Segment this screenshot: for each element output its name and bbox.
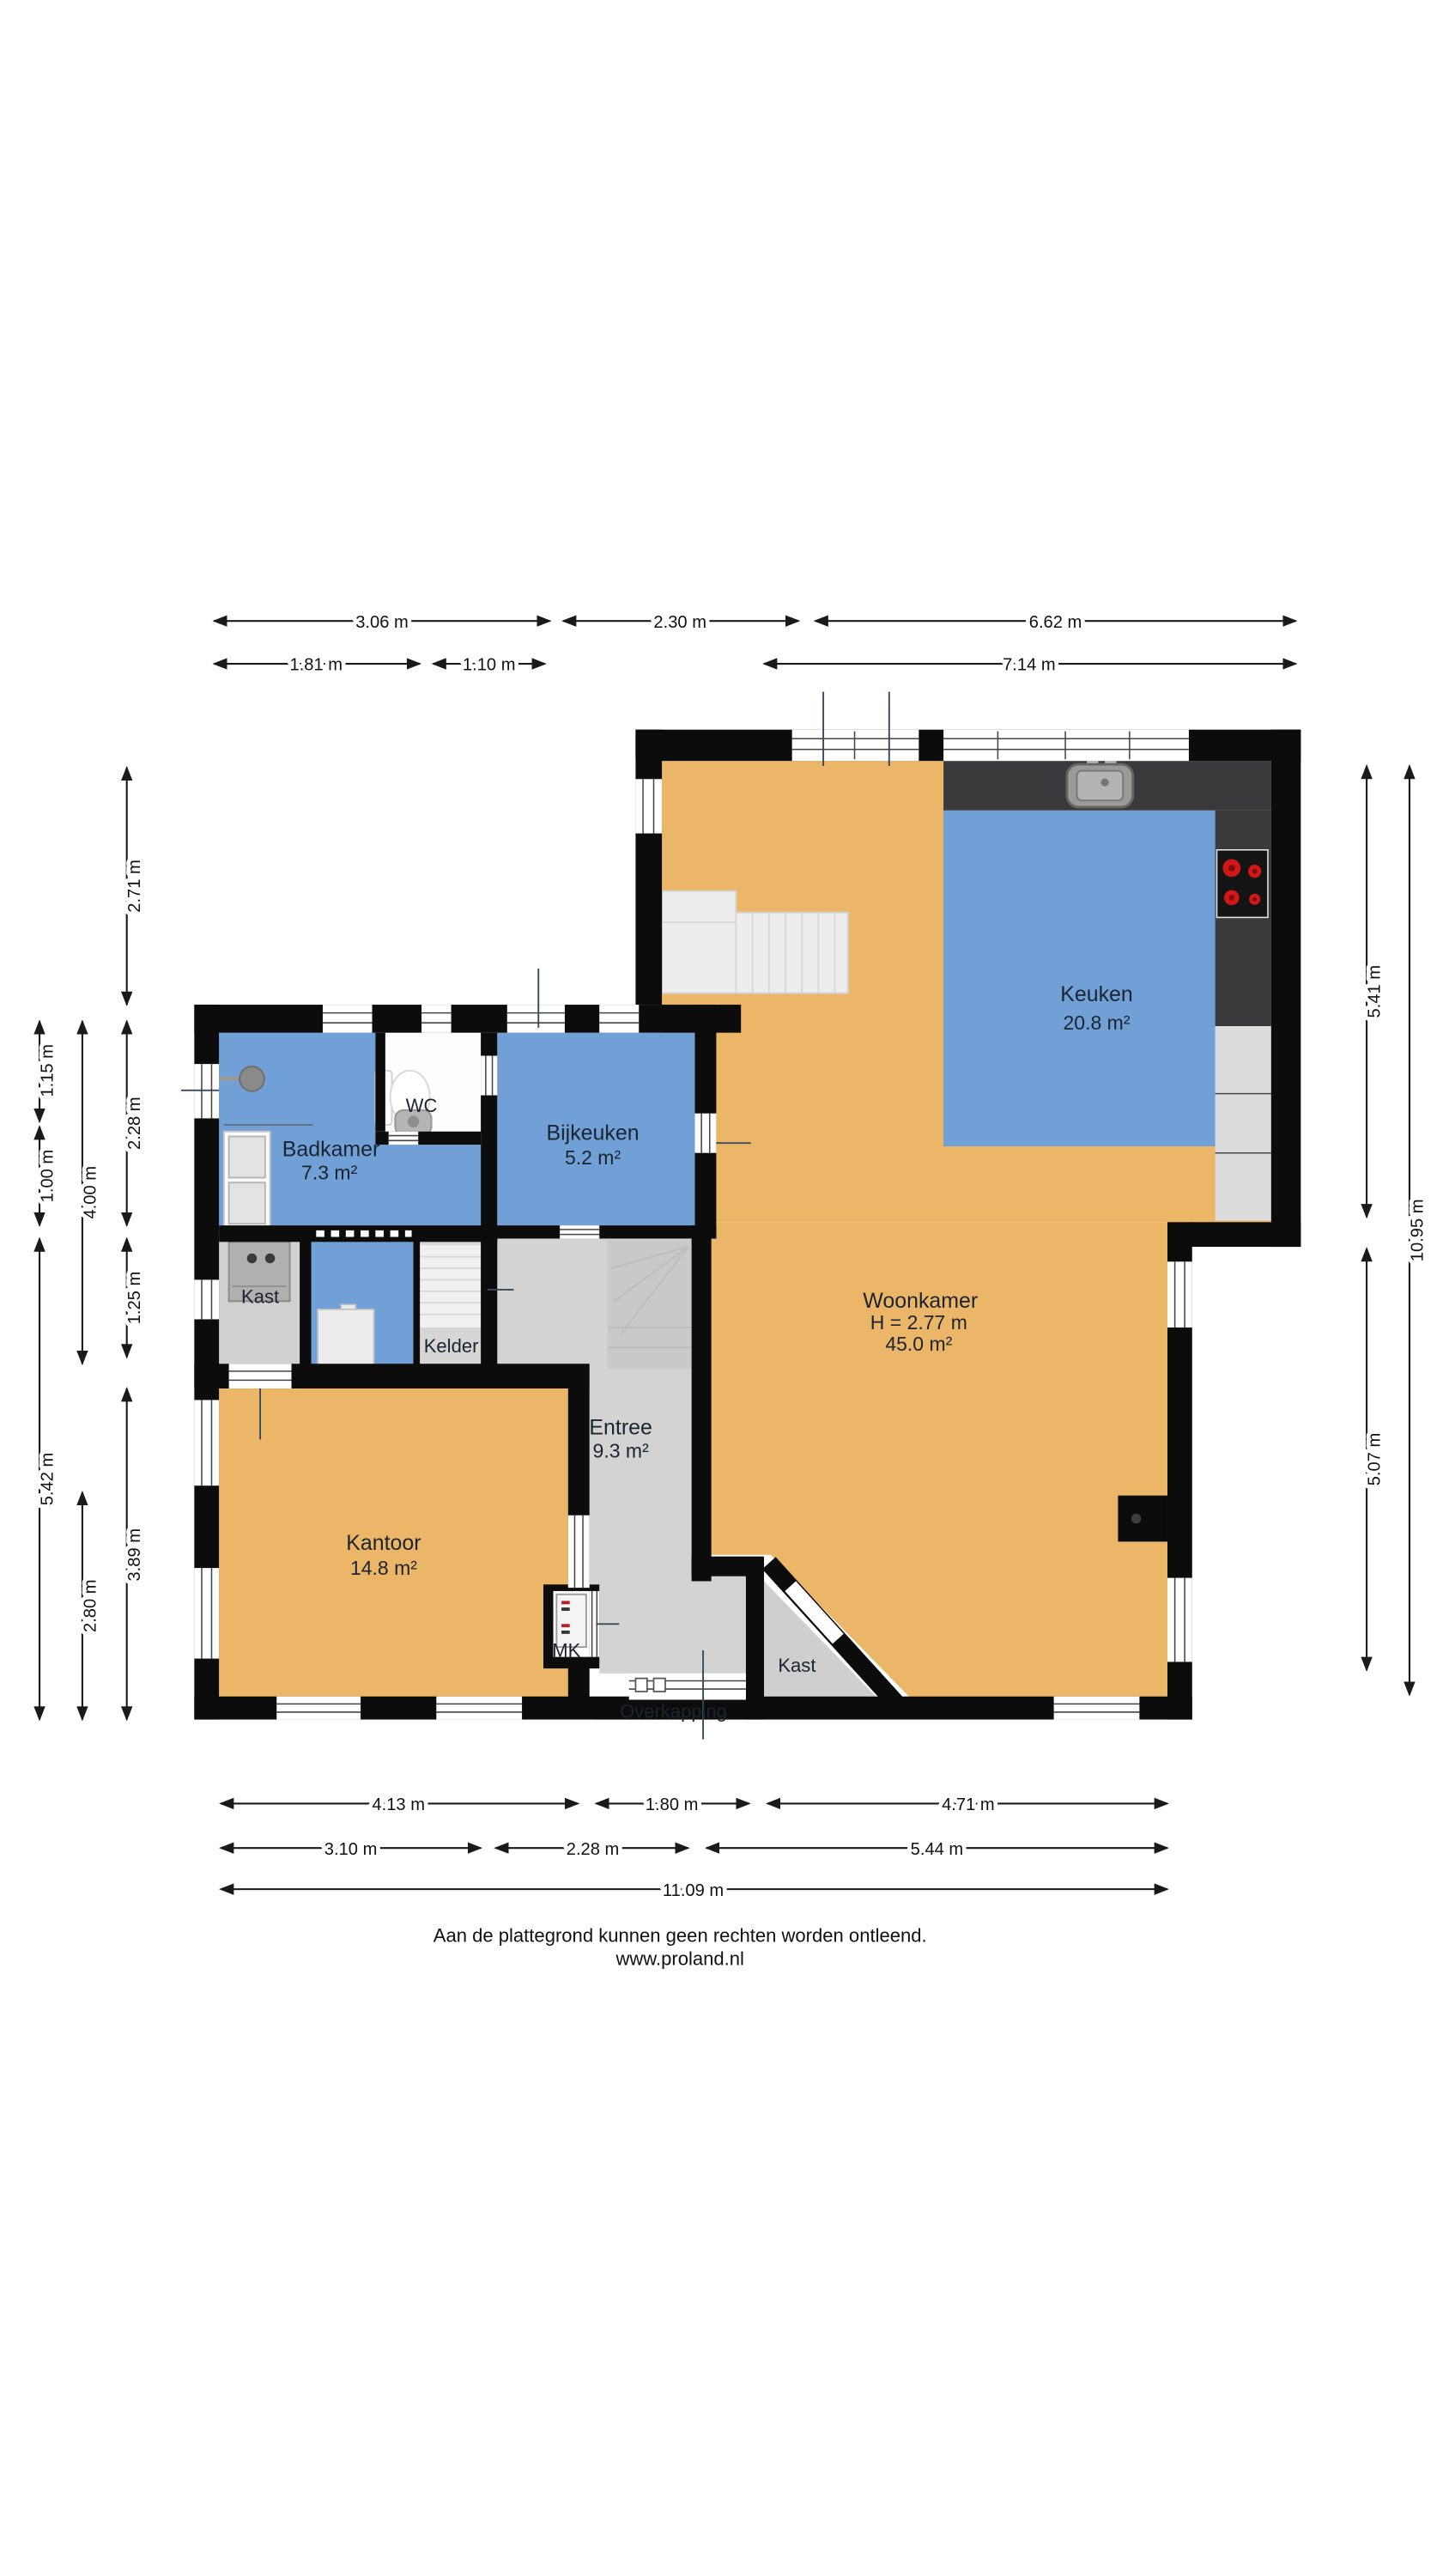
dimension: 11.09 m [221,1881,1167,1900]
stairs-entree [608,1240,692,1369]
dimension: 1.00 m [38,1127,57,1225]
wall-kast-hal-left [746,1564,764,1719]
window [1054,1697,1140,1720]
label-badkamer-area: 7.3 m² [301,1161,358,1183]
dimension: 1.25 m [125,1238,144,1357]
dimension: 1.80 m [596,1795,749,1814]
svg-text:4.71 m: 4.71 m [942,1795,995,1814]
window [276,1697,361,1720]
dimension: 2.28 m [125,1021,144,1225]
svg-text:3.10 m: 3.10 m [324,1840,378,1859]
label-kantoor-area: 14.8 m² [350,1557,417,1579]
label-keuken-area: 20.8 m² [1064,1012,1131,1034]
dimension: 5.44 m [706,1840,1167,1859]
label-mk: MK [552,1640,580,1662]
wall-kast-right [300,1229,311,1374]
boiler-icon [318,1304,373,1369]
window [194,1279,219,1319]
label-bijkeuken: Bijkeuken [547,1121,640,1145]
door [568,1516,590,1588]
svg-text:5.41 m: 5.41 m [1365,965,1384,1018]
svg-text:2.80 m: 2.80 m [81,1579,100,1632]
dimension: 5.07 m [1365,1249,1384,1670]
door [481,1056,497,1096]
dimension: 3.89 m [125,1388,144,1720]
label-badkamer: Badkamer [282,1138,380,1162]
window [635,779,662,833]
wall-entree-woonkamer [692,1225,712,1581]
fireplace-column [1118,1496,1167,1542]
window [194,1568,219,1658]
wall-badkamer-bottom [219,1225,497,1242]
label-woonkamer-height: H = 2.77 m [870,1311,967,1334]
svg-text:1.10 m: 1.10 m [463,656,516,675]
floor-plan-page: Keuken 20.8 m² Badkamer 7.3 m² WC Bijkeu… [0,0,1449,2576]
vanity-cabinet-icon [224,1132,270,1229]
window [507,1005,565,1033]
label-bijkeuken-area: 5.2 m² [565,1146,621,1169]
dimension: 4.13 m [221,1795,578,1814]
room-keuken-floor [943,811,1215,1146]
svg-text:11.09 m: 11.09 m [663,1881,724,1900]
label-keuken: Keuken [1060,982,1133,1006]
window [323,1005,373,1033]
label-overkapping: Overkapping [620,1701,727,1722]
front-door [629,1674,746,1700]
window [194,1400,219,1485]
svg-text:1.15 m: 1.15 m [38,1044,57,1097]
dimension: 1.15 m [38,1021,57,1121]
svg-text:3.89 m: 3.89 m [125,1528,144,1582]
dimension: 3.10 m [221,1840,481,1859]
window [436,1697,522,1720]
floor-plan-canvas: Keuken 20.8 m² Badkamer 7.3 m² WC Bijkeu… [0,0,1449,2576]
svg-text:5.07 m: 5.07 m [1365,1433,1384,1486]
svg-text:7.14 m: 7.14 m [1003,656,1056,675]
svg-text:1.00 m: 1.00 m [38,1150,57,1203]
door [694,1114,716,1153]
svg-text:1.25 m: 1.25 m [125,1272,144,1325]
fireplace-dot [1131,1514,1142,1524]
dimension: 5.41 m [1365,766,1384,1218]
window [1167,1261,1192,1327]
svg-text:1.81 m: 1.81 m [290,656,343,675]
svg-text:2.30 m: 2.30 m [653,613,706,632]
window [943,730,1189,761]
label-entree: Entree [589,1416,652,1440]
label-kelder: Kelder [424,1335,479,1357]
svg-text:2.28 m: 2.28 m [125,1097,144,1150]
svg-text:5.44 m: 5.44 m [911,1840,964,1859]
dimension: 4.00 m [81,1021,100,1364]
label-entree-area: 9.3 m² [593,1440,650,1462]
footer: Aan de plattegrond kunnen geen rechten w… [433,1925,927,1970]
wall-upper-left [635,730,662,1005]
wall-upper-right [1271,730,1301,1247]
dimension: 2.28 m [495,1840,688,1859]
label-kast-badkamer: Kast [241,1285,279,1307]
svg-text:10.95 m: 10.95 m [1408,1200,1427,1262]
wall-wc-left [375,1033,385,1132]
dimension: 5.42 m [38,1238,57,1719]
svg-text:1.80 m: 1.80 m [646,1795,699,1814]
label-woonkamer-area: 45.0 m² [885,1333,952,1355]
stairs-kelder [420,1245,481,1327]
window [421,1005,452,1033]
svg-text:6.62 m: 6.62 m [1029,613,1082,632]
dimension: 2.71 m [125,768,144,1005]
svg-text:2.28 m: 2.28 m [567,1840,620,1859]
dimension: 3.06 m [214,613,549,632]
footer-website: www.proland.nl [615,1947,744,1969]
svg-text:3.06 m: 3.06 m [355,613,409,632]
window [599,1005,639,1033]
svg-text:2.71 m: 2.71 m [125,860,144,913]
svg-text:5.42 m: 5.42 m [38,1453,57,1506]
label-woonkamer: Woonkamer [863,1289,978,1313]
svg-text:4.00 m: 4.00 m [81,1166,100,1219]
stove-icon [1217,850,1268,918]
counter-right [1216,811,1271,1026]
dimension: 1.10 m [433,656,544,675]
door [389,1132,419,1145]
wall-kelder-left [413,1229,420,1374]
dimension: 10.95 m [1408,766,1427,1695]
window [792,730,919,761]
cabinet-right [1216,1026,1271,1220]
footer-disclaimer: Aan de plattegrond kunnen geen rechten w… [433,1925,927,1947]
sink-icon [1067,757,1133,807]
door [560,1225,599,1238]
dimension: 2.80 m [81,1492,100,1720]
dimension: 6.62 m [815,613,1295,632]
window [1167,1578,1192,1662]
label-kantoor: Kantoor [346,1531,421,1555]
wall-kitchen-bottom [1191,1222,1301,1247]
svg-text:4.13 m: 4.13 m [372,1795,425,1814]
label-kast-hal: Kast [778,1655,815,1676]
wall-main-top [194,1005,741,1033]
dimension: 4.71 m [767,1795,1167,1814]
wall-kelder-right [481,1229,497,1380]
label-wc: WC [406,1095,438,1116]
dimension: 7.14 m [764,656,1296,675]
dimension: 1.81 m [214,656,420,675]
dimension: 2.30 m [563,613,798,632]
